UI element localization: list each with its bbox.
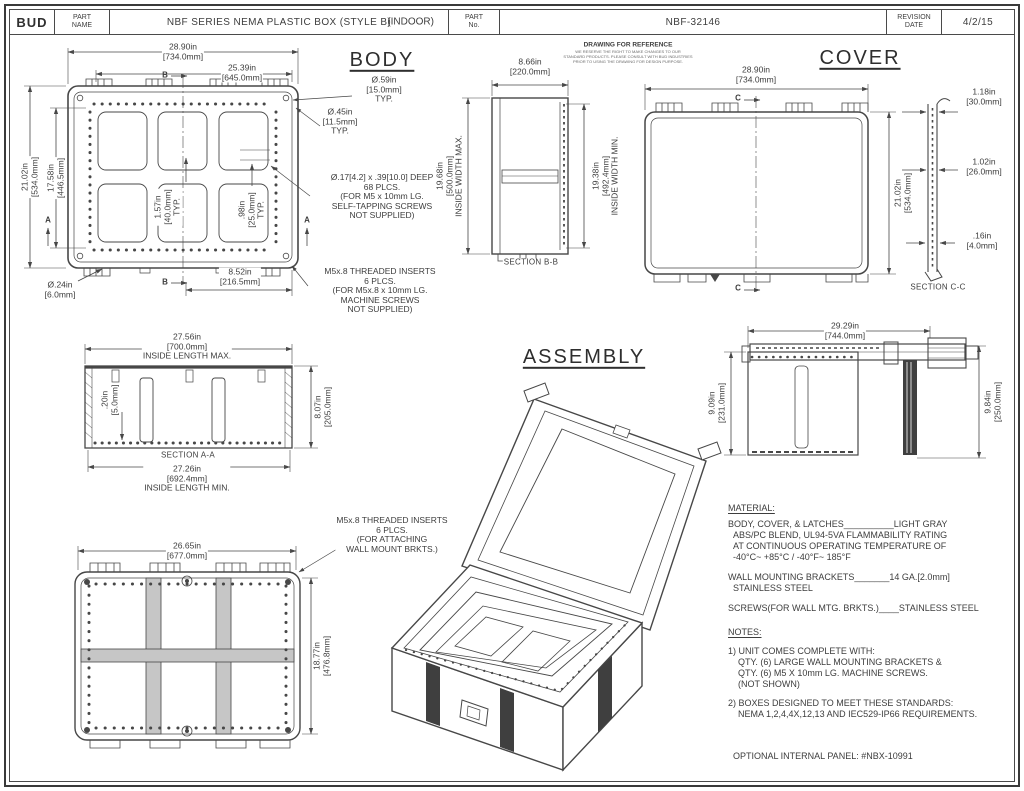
body-center-offset-dim: 8.52in [216.5mm] <box>219 267 261 286</box>
section-aa-label: SECTION A-A <box>160 452 216 461</box>
section-aa-inside-max-dim: 27.56in [700.0mm] INSIDE LENGTH MAX. <box>142 333 232 362</box>
section-bb-depth-dim: 8.66in [220.0mm] <box>509 57 551 76</box>
cover-view-title: COVER <box>818 47 901 69</box>
section-aa-inside-min-dim: 27.26in [692.4mm] INSIDE LENGTH MIN. <box>143 465 230 494</box>
body-front-view-art <box>24 48 352 296</box>
body-width-dim: 28.90in [734.0mm] <box>162 42 204 61</box>
section-aa-rib-dim: .20in [5.0mm] <box>100 384 119 417</box>
assembly-iso-art <box>392 383 721 770</box>
note-2: 2) BOXES DESIGNED TO MEET THESE STANDARD… <box>728 698 1018 720</box>
body-view-title: BODY <box>349 49 416 71</box>
section-b-marker-bottom: B <box>161 279 169 288</box>
drawing-sheet: BUD PART NAME NBF SERIES NEMA PLASTIC BO… <box>0 0 1024 791</box>
body-hole-59-callout: Ø.59in [15.0mm] TYP. <box>365 76 402 105</box>
body-height-dim: 21.02in [534.0mm] <box>20 156 39 198</box>
side-width-dim: 29.29in [744.0mm] <box>824 321 866 340</box>
section-cc-lip-dim: .16in [4.0mm] <box>966 231 999 250</box>
section-aa-depth-dim: 8.07in [205.0mm] <box>313 386 332 428</box>
section-bb-inside-max-dim: 19.68in [500.0mm] INSIDE WIDTH MAX. <box>436 134 465 218</box>
material-heading: MATERIAL: <box>728 503 775 514</box>
section-bb-inside-min-dim: 19.38in [492.4mm] INSIDE WIDTH MIN. <box>592 136 621 217</box>
section-b-marker-top: B <box>161 72 169 81</box>
bottom-width-dim: 26.65in [677.0mm] <box>166 541 208 560</box>
optional-panel-note: OPTIONAL INTERNAL PANEL: #NBX-10991 <box>733 751 1013 762</box>
side-total-height-dim: 9.84in [250.0mm] <box>983 381 1002 423</box>
section-cc-depth-dim: 1.02in [26.0mm] <box>965 157 1002 176</box>
section-cc-label: SECTION C-C <box>909 284 966 293</box>
body-hole-45-callout: Ø.45in [11.5mm] TYP. <box>322 108 359 137</box>
material-screws: SCREWS(FOR WALL MTG. BRKTS.)____STAINLES… <box>728 603 1018 614</box>
body-inner-width-dim: 25.39in [645.0mm] <box>221 63 263 82</box>
section-bb-art <box>462 80 590 261</box>
section-c-marker-bottom: C <box>734 285 742 294</box>
section-cc-flange-dim: 1.18in [30.0mm] <box>965 87 1002 106</box>
body-inserts-note: M5x.8 THREADED INSERTS 6 PLCS. (FOR M5x.… <box>323 267 436 315</box>
bottom-height-dim: 18.77in [476.8mm] <box>312 635 331 677</box>
material-body-cover: BODY, COVER, & LATCHES__________LIGHT GR… <box>728 519 1018 563</box>
body-screw-holes-note: Ø.17[4.2] x .39[10.0] DEEP 68 PLCS. (FOR… <box>330 173 435 221</box>
reference-disclaimer-title: DRAWING FOR REFERENCE <box>583 41 674 48</box>
cover-width-dim: 28.90in [734.0mm] <box>735 65 777 84</box>
notes-heading: NOTES: <box>728 627 762 638</box>
side-body-height-dim: 9.09in [231.0mm] <box>707 382 726 424</box>
body-hole-pitch-25-dim: .98in [25.0mm] TYP. <box>238 191 267 228</box>
note-1: 1) UNIT COMES COMPLETE WITH: QTY. (6) LA… <box>728 646 1018 690</box>
bottom-inserts-note: M5x.8 THREADED INSERTS 6 PLCS. (FOR ATTA… <box>335 516 448 554</box>
section-c-marker-top: C <box>734 95 742 104</box>
material-brackets: WALL MOUNTING BRACKETS_______14 GA.[2.0m… <box>728 572 1018 594</box>
body-hole-pitch-40-dim: 1.57in [40.0mm] TYP. <box>154 188 183 225</box>
section-a-marker-right: A <box>303 217 311 226</box>
cover-view-art <box>645 84 896 292</box>
assembly-title: ASSEMBLY <box>522 346 646 368</box>
reference-disclaimer-body: WE RESERVE THE RIGHT TO MAKE CHANGES TO … <box>562 49 693 65</box>
body-inner-height-dim: 17.58in [446.5mm] <box>46 157 65 199</box>
cover-height-dim: 21.02in [534.0mm] <box>893 172 912 214</box>
section-a-marker-left: A <box>44 217 52 226</box>
side-view-art <box>724 326 986 458</box>
section-bb-label: SECTION B-B <box>503 259 559 268</box>
bottom-view-art <box>75 540 352 748</box>
body-foot-hole-dim: Ø.24in [6.0mm] <box>44 280 77 299</box>
